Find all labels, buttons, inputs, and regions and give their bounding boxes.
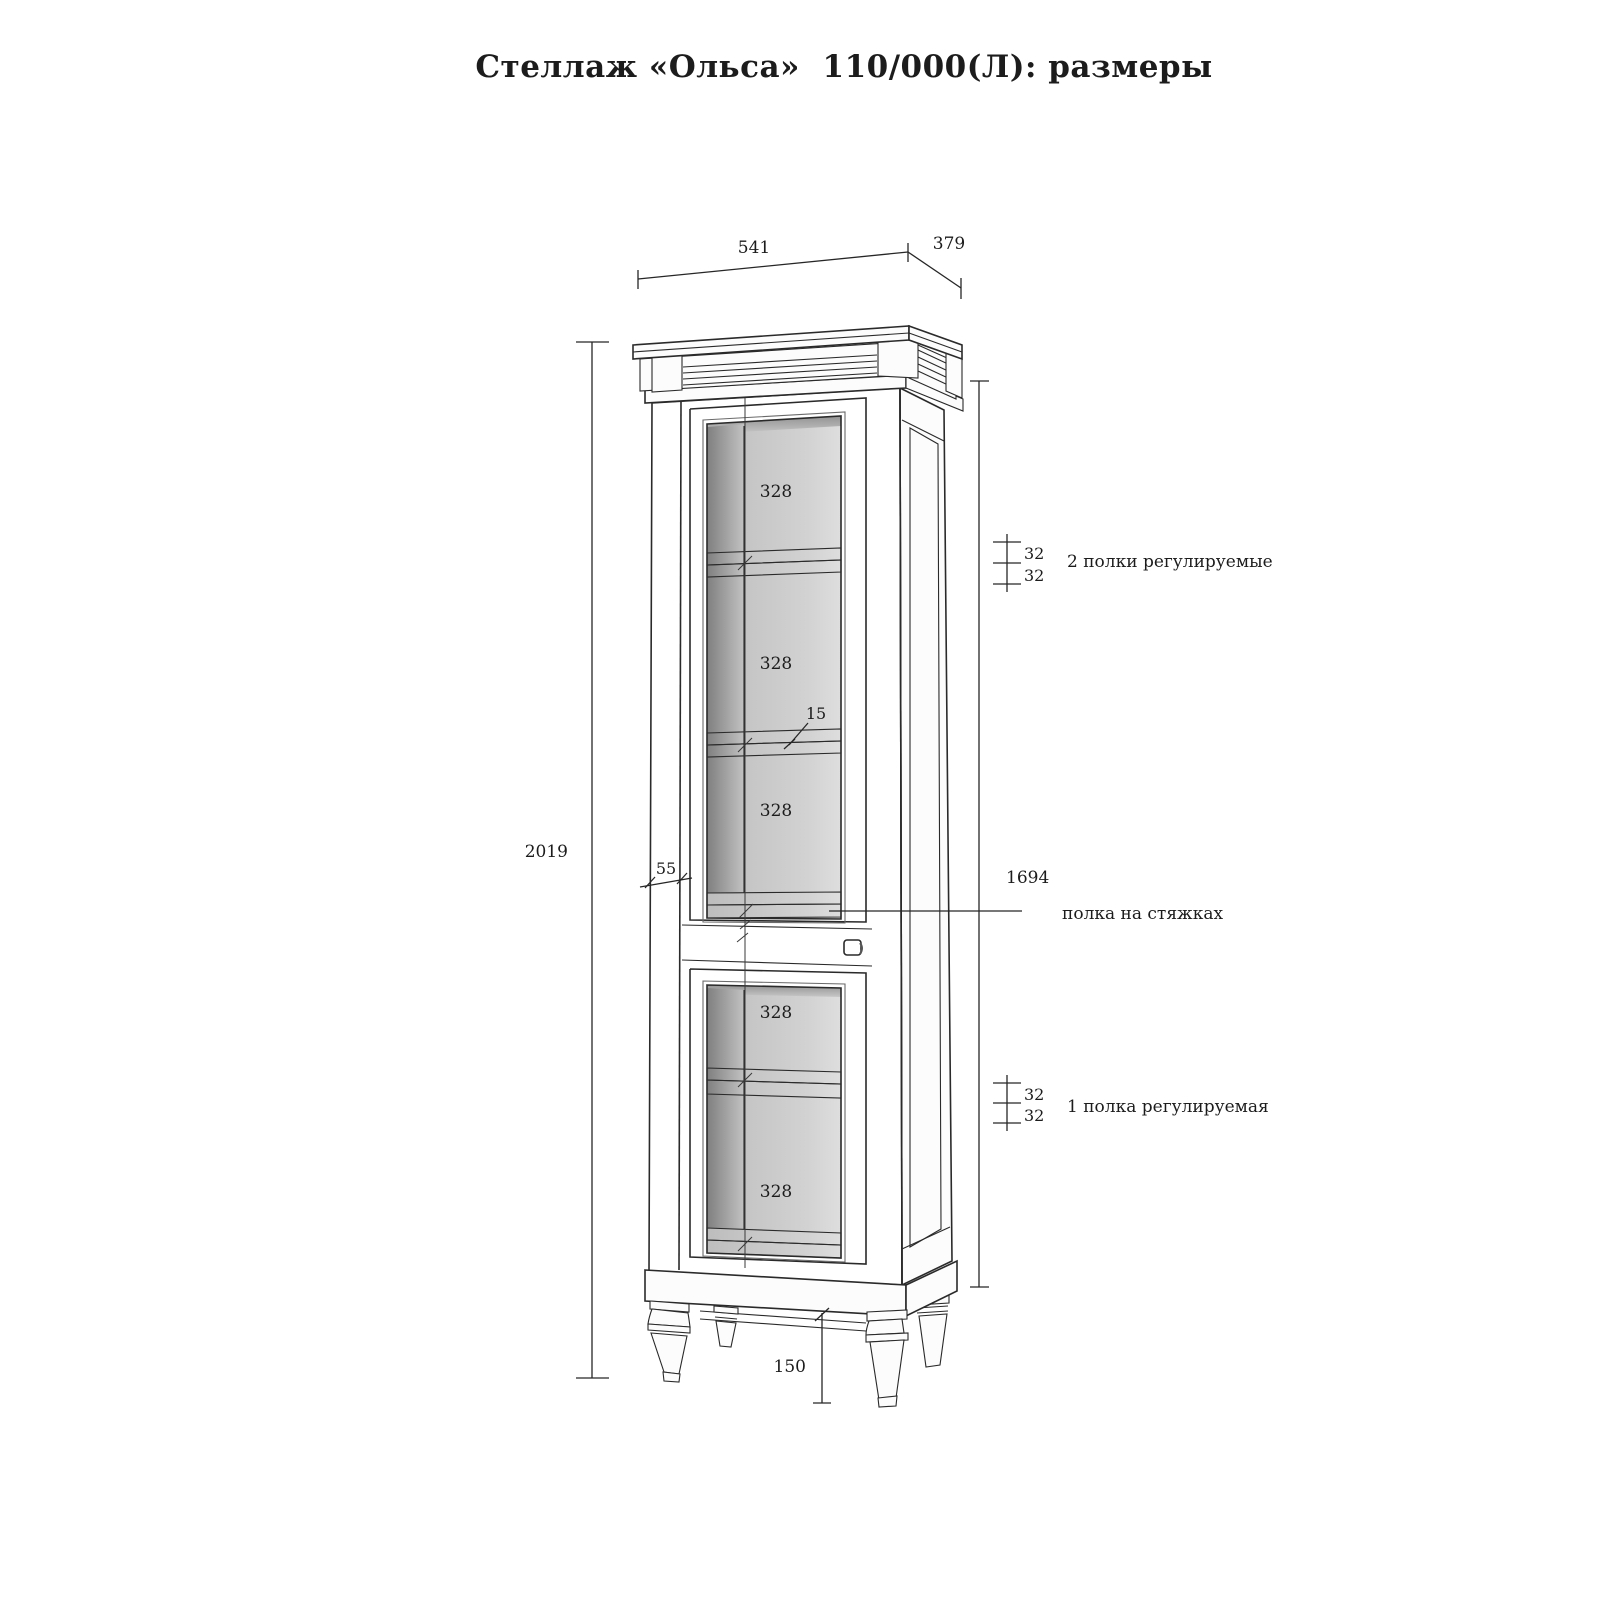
cabinet-dimension-drawing: Стеллаж «Ольса» 110/000(Л): размеры: [0, 0, 1600, 1600]
drawing-page: Стеллаж «Ольса» 110/000(Л): размеры: [0, 0, 1600, 1600]
lower-door-interior: [707, 985, 841, 1258]
note-lower-shelf: 1 полка регулируемая: [1067, 1097, 1269, 1117]
dim-stile-width-label: 55: [656, 859, 676, 878]
dim-stile-width: 55: [640, 859, 692, 888]
dim-carcass-height: 1694: [970, 381, 1049, 1287]
dim-step-label: 32: [1024, 566, 1044, 585]
dim-section-label: 328: [760, 1182, 792, 1202]
dim-section-label: 328: [760, 654, 792, 674]
dim-top-width-label: 541: [738, 238, 770, 258]
note-tie-shelf: полка на стяжках: [1062, 904, 1223, 924]
dim-lower-steps: 32 32 1 полка регулируемая: [993, 1075, 1269, 1131]
dim-shelf-thickness-label: 15: [806, 704, 826, 723]
dim-step-label: 32: [1024, 544, 1044, 563]
dim-total-height: 2019: [525, 342, 609, 1378]
base: [645, 1261, 957, 1407]
dim-carcass-height-label: 1694: [1006, 868, 1049, 888]
note-tie-shelf-group: полка на стяжках: [829, 904, 1223, 924]
door-knob: [844, 940, 861, 955]
dim-leg-height: 150: [774, 1308, 831, 1403]
dim-top-depth-label: 379: [933, 234, 965, 254]
dim-upper-steps: 32 32 2 полки регулируемые: [993, 534, 1273, 592]
cabinet-body: [649, 365, 952, 1285]
leg-front-left: [648, 1301, 690, 1382]
dim-step-label: 32: [1024, 1106, 1044, 1125]
dim-leg-height-label: 150: [774, 1357, 806, 1377]
leg-back-left: [714, 1306, 738, 1347]
dim-top-depth: 379: [908, 234, 965, 299]
dim-total-height-label: 2019: [525, 842, 568, 862]
page-title: Стеллаж «Ольса» 110/000(Л): размеры: [475, 49, 1212, 85]
leg-front-right: [866, 1310, 908, 1407]
dim-section-label: 328: [760, 801, 792, 821]
dim-step-label: 32: [1024, 1085, 1044, 1104]
dim-top-width: 541: [638, 238, 908, 289]
middle-rail: [682, 925, 872, 966]
dim-section-label: 328: [760, 482, 792, 502]
side-panel: [900, 388, 952, 1285]
dim-section-label: 328: [760, 1003, 792, 1023]
note-upper-shelves: 2 полки регулируемые: [1067, 552, 1273, 572]
